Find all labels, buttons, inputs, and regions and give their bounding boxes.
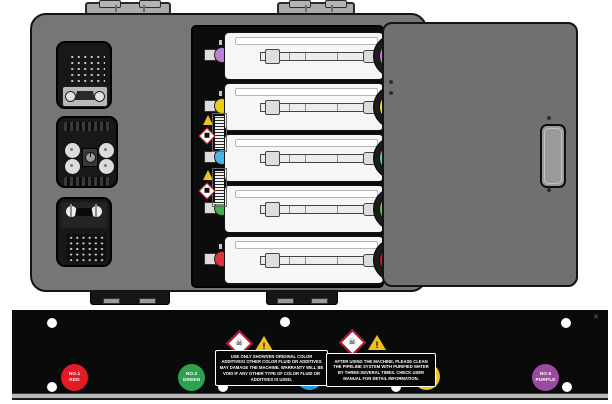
bottom-label-panel: ✕ NO.1 RED NO.2 GREEN NO.3 BLUE NO.4 YEL…	[12, 310, 608, 393]
rod-collar	[265, 49, 280, 64]
caution-sticker	[212, 113, 227, 152]
pump-tube	[235, 139, 378, 147]
pump-tray	[224, 83, 384, 131]
pump-tube	[235, 190, 378, 198]
screw-icon	[94, 91, 105, 102]
xlr-socket	[64, 142, 81, 159]
mounting-hole	[47, 382, 57, 392]
dial-knob	[85, 152, 96, 163]
mounting-hole	[562, 382, 572, 392]
screw-icon	[389, 91, 393, 95]
latch-tab	[325, 0, 347, 8]
dip-switch-grid	[66, 233, 106, 262]
foot-slot	[311, 298, 328, 304]
pump-tube	[235, 88, 378, 96]
vent-grille	[64, 177, 110, 186]
caution-sticker	[212, 168, 227, 207]
color-port-no2-green: NO.2 GREEN	[178, 364, 205, 391]
screw-icon	[389, 80, 393, 84]
screw-icon	[65, 91, 76, 102]
latch-seam	[143, 5, 145, 12]
pump-tube	[235, 37, 378, 45]
rod-collar	[265, 202, 280, 217]
indicator-dot-grid	[67, 52, 105, 82]
pump-tray	[224, 32, 384, 80]
dsub-connector	[62, 86, 108, 107]
row-number-mark	[219, 91, 222, 96]
screw-icon	[547, 116, 551, 120]
pump-tray	[224, 185, 384, 233]
pump-tube	[235, 241, 378, 249]
row-number-mark	[219, 244, 222, 249]
dsub-connector-zone	[61, 202, 107, 228]
latch-seam	[115, 5, 117, 12]
xlr-socket	[64, 158, 81, 175]
rod-collar	[265, 253, 280, 268]
foot-slot	[277, 298, 294, 304]
connector-socket	[75, 208, 93, 216]
pump-bay	[191, 25, 384, 288]
latch-tab	[99, 0, 121, 8]
port-label: PURPLE	[535, 378, 555, 384]
color-port-no1-red: NO.1 RED	[61, 364, 88, 391]
rod-collar	[265, 100, 280, 115]
corner-mark: ✕	[593, 314, 599, 321]
color-port-no5-purple: NO.5 PURPLE	[532, 364, 559, 391]
sliding-door	[382, 22, 578, 287]
latch-seam	[331, 5, 333, 12]
foot-slot	[139, 298, 156, 304]
foot-slot	[103, 298, 120, 304]
mounting-hole	[47, 318, 57, 328]
latch-tab	[289, 0, 311, 8]
ghs-toxic-icon: ☠	[339, 329, 366, 356]
pump-tray	[224, 134, 384, 182]
row-number-mark	[219, 40, 222, 45]
warning-triangle-icon: !	[366, 332, 388, 351]
address-dial	[82, 148, 98, 167]
port-label: RED	[69, 378, 79, 384]
port-label: GREEN	[183, 378, 201, 384]
status-display-module	[56, 41, 112, 109]
screw-icon	[547, 188, 551, 192]
data-port-module	[56, 197, 112, 267]
machine-rear-diagram: ✕ NO.1 RED NO.2 GREEN NO.3 BLUE NO.4 YEL…	[0, 0, 612, 404]
mounting-hole	[280, 317, 290, 327]
additives-warning-label: USE ONLY SHOWVEN ORIGINAL COLOR ADDITIVE…	[215, 350, 328, 386]
pump-row-5-red	[193, 236, 382, 282]
panel-bottom-rail	[12, 393, 608, 400]
xlr-socket	[98, 158, 115, 175]
mounting-hole	[561, 318, 571, 328]
cleaning-warning-label: AFTER USING THE MACHINE, PLEASE CLEAN TH…	[326, 353, 436, 387]
xlr-socket	[98, 142, 115, 159]
door-handle	[540, 124, 566, 188]
vent-grille	[64, 122, 110, 131]
signal-io-module	[56, 116, 118, 188]
latch-seam	[305, 5, 307, 12]
connector-socket	[75, 91, 95, 100]
pump-tray	[224, 236, 384, 284]
rod-collar	[265, 151, 280, 166]
pump-row-1-purple	[193, 32, 382, 78]
